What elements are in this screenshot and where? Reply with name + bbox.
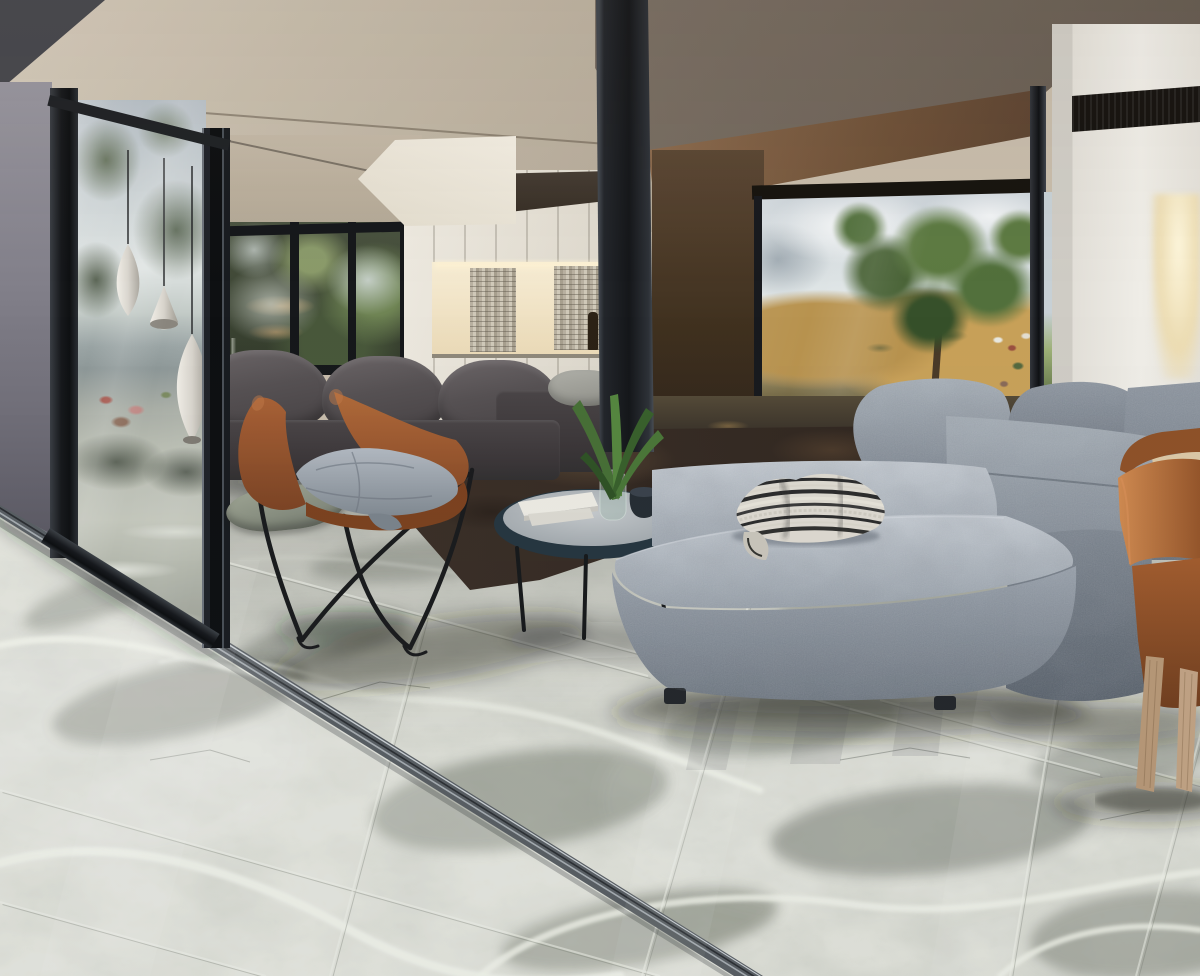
leather-wing-left xyxy=(238,398,306,510)
butterfly-chair xyxy=(225,372,505,672)
chair-shadow xyxy=(1095,788,1200,812)
cabinet-top-band xyxy=(404,170,650,226)
left-grey-wall xyxy=(0,82,52,544)
ottoman-foot xyxy=(934,696,956,710)
window-frame-top xyxy=(216,221,408,236)
living-room-scene xyxy=(0,0,1200,976)
warm-recess-glow xyxy=(1152,194,1200,379)
dining-set xyxy=(1095,418,1200,818)
wall-fascia xyxy=(206,135,422,235)
vent-slot xyxy=(1072,86,1200,134)
chair-back xyxy=(1118,459,1200,566)
wood-leg xyxy=(1136,656,1164,792)
dark-soffit-wedge xyxy=(0,0,105,90)
